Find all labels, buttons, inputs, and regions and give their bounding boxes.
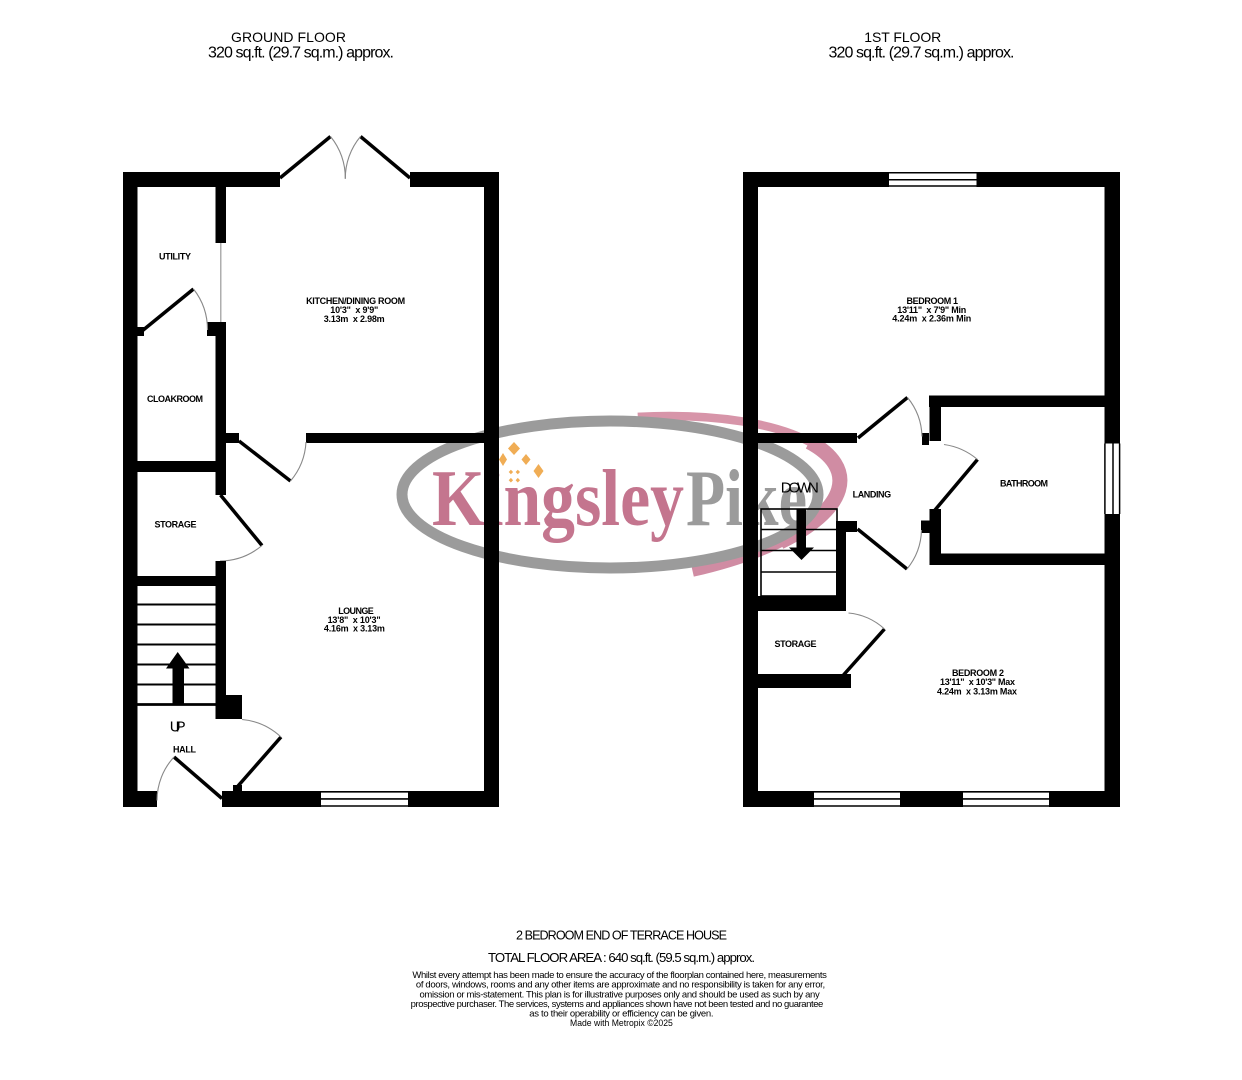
svg-text:3.13m x 2.98m: 3.13m x 2.98m	[324, 314, 385, 324]
svg-text:1ST FLOOR: 1ST FLOOR	[864, 29, 941, 45]
svg-text:HALL: HALL	[173, 745, 197, 755]
svg-text:4.24m x 2.36m Min: 4.24m x 2.36m Min	[892, 314, 971, 324]
svg-text:13'11" x 10'3" Max: 13'11" x 10'3" Max	[940, 677, 1015, 687]
svg-text:CLOAKROOM: CLOAKROOM	[147, 394, 203, 404]
svg-text:320 sq.ft. (29.7 sq.m.) approx: 320 sq.ft. (29.7 sq.m.) approx.	[829, 45, 1015, 62]
svg-text:4.16m x 3.13m: 4.16m x 3.13m	[324, 624, 385, 634]
svg-text:320 sq.ft. (29.7 sq.m.) approx: 320 sq.ft. (29.7 sq.m.) approx.	[208, 45, 394, 62]
svg-text:GROUND FLOOR: GROUND FLOOR	[231, 29, 346, 45]
svg-text:2 BEDROOM END OF TERRACE HOUSE: 2 BEDROOM END OF TERRACE HOUSE	[516, 929, 727, 943]
svg-text:LANDING: LANDING	[853, 490, 892, 500]
svg-text:Made with Metropix ©2025: Made with Metropix ©2025	[570, 1018, 673, 1029]
svg-text:BATHROOM: BATHROOM	[1000, 479, 1048, 489]
svg-text:STORAGE: STORAGE	[155, 520, 197, 530]
svg-text:TOTAL FLOOR AREA : 640 sq.ft.: TOTAL FLOOR AREA : 640 sq.ft. (59.5 sq.m…	[488, 950, 755, 965]
svg-text:Kingsley: Kingsley	[432, 455, 684, 543]
svg-text:UP: UP	[170, 719, 186, 736]
svg-text:4.24m x 3.13m Max: 4.24m x 3.13m Max	[937, 687, 1017, 697]
svg-text:STORAGE: STORAGE	[775, 639, 817, 649]
svg-text:DOWN: DOWN	[781, 480, 819, 497]
svg-text:UTILITY: UTILITY	[159, 252, 191, 262]
